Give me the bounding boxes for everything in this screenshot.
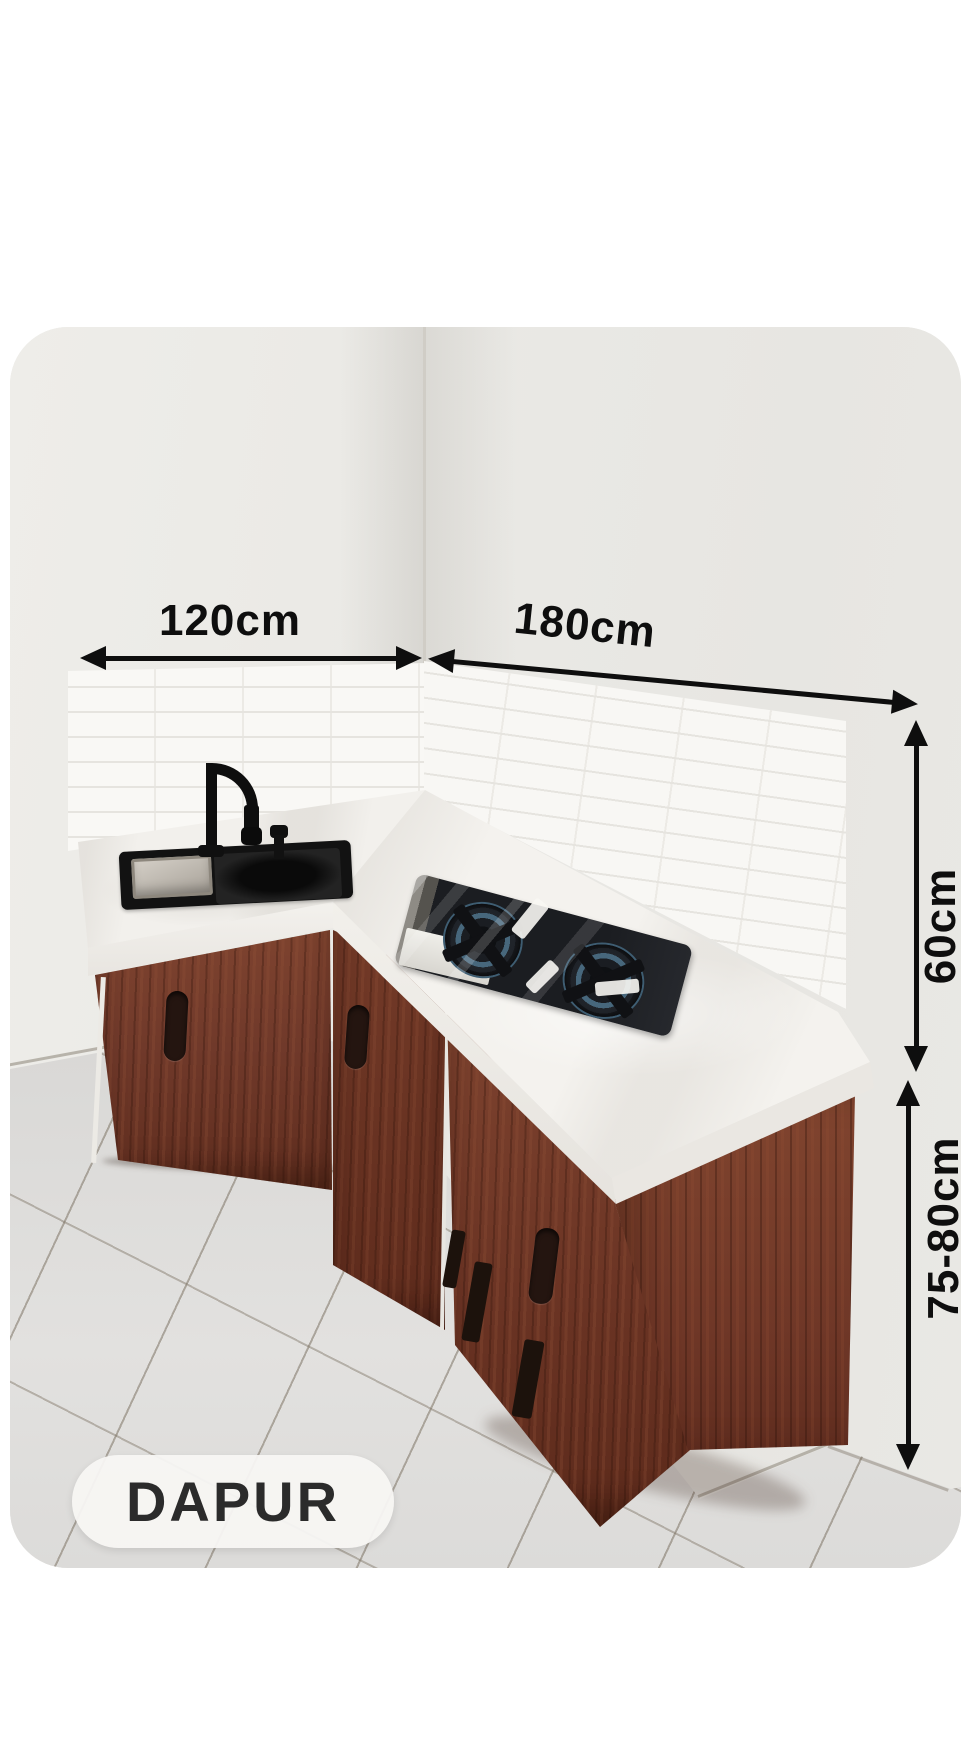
faucet-base (198, 845, 224, 857)
faucet-nozzle (241, 827, 262, 845)
packing-tape (595, 979, 640, 997)
sink-drain-tray (131, 855, 213, 899)
arrowhead-down-icon (896, 1444, 920, 1470)
arrow-line (914, 740, 919, 1052)
page: 120cm 180cm 60cm 75-80cm DAPUR (0, 0, 973, 1754)
arrow-line (906, 1100, 911, 1450)
dimension-label-75-80cm: 75-80cm (920, 1118, 961, 1338)
room-badge-label: DAPUR (126, 1469, 340, 1534)
sink-cabinet-handle (163, 990, 189, 1061)
wall-left-shading (340, 327, 426, 672)
packing-tape (511, 897, 550, 940)
arrow-line (100, 656, 402, 661)
room-badge: DAPUR (72, 1455, 394, 1548)
kitchen-photo: 120cm 180cm 60cm 75-80cm DAPUR (10, 327, 961, 1568)
arrowhead-down-icon (904, 1046, 928, 1072)
middle-cabinet-handle (344, 1004, 370, 1069)
dimension-label-120cm: 120cm (120, 597, 340, 645)
height-arrow-60 (903, 720, 929, 1072)
soap-dispenser-stem (274, 835, 284, 859)
height-arrow-75-80 (895, 1080, 921, 1470)
stove-burner-front (437, 895, 529, 984)
arrowhead-right-icon (396, 646, 422, 670)
width-arrow-120 (80, 645, 422, 671)
arrowhead-right-icon (891, 690, 919, 716)
packing-tape (525, 959, 560, 994)
